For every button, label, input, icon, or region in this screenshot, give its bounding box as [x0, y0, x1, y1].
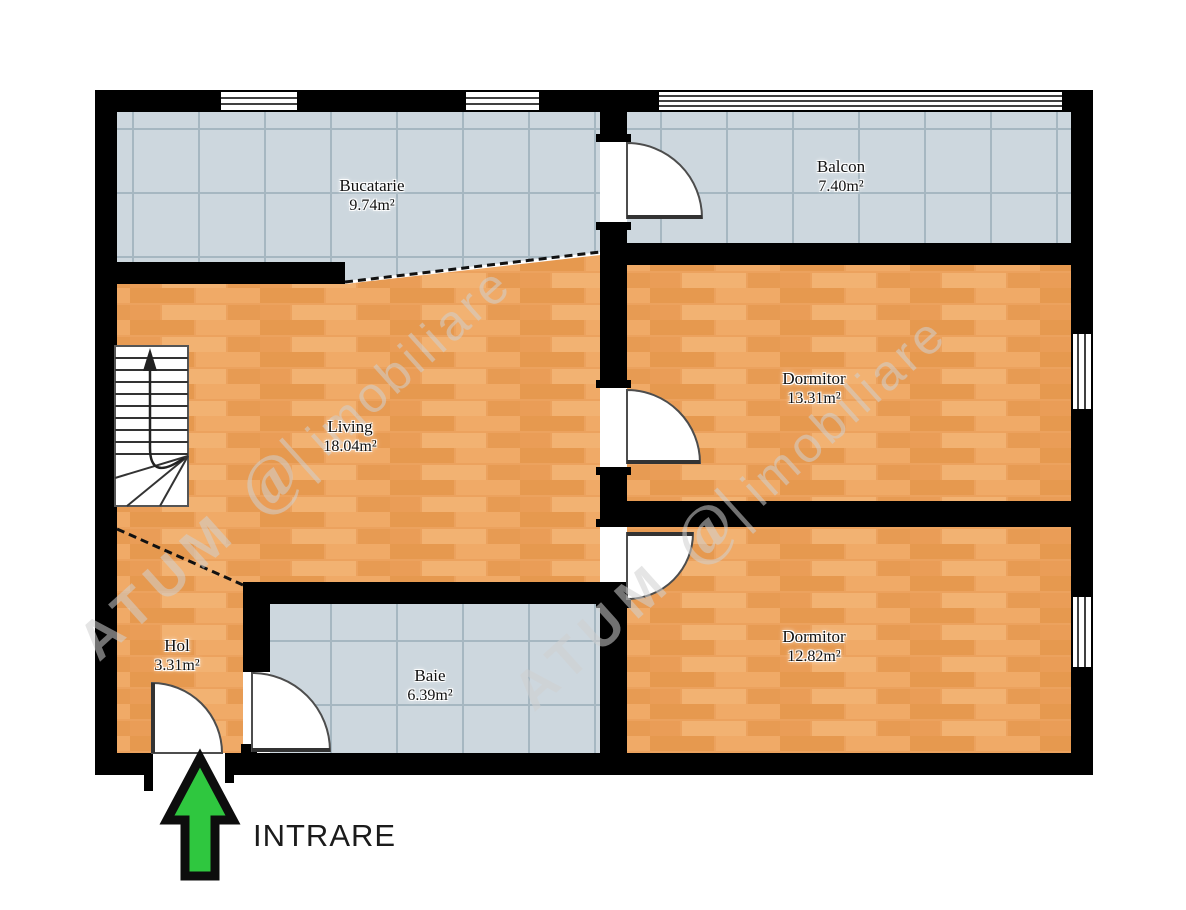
room-area: 12.82m² — [787, 648, 840, 667]
floor-plan-drawing — [0, 0, 1186, 910]
dormitor2-window — [1072, 596, 1092, 668]
staircase — [115, 346, 188, 506]
dormitor1-window — [1072, 333, 1092, 410]
balcony-glazing — [658, 91, 1063, 111]
room-label-balcon: Balcon 7.40m² — [817, 157, 865, 197]
kitchen-window-1 — [220, 91, 298, 111]
room-area: 9.74m² — [349, 197, 394, 216]
room-name: Baie — [414, 666, 445, 686]
room-name: Dormitor — [782, 369, 845, 389]
room-label-living: Living 18.04m² — [323, 417, 376, 457]
room-label-baie: Baie 6.39m² — [407, 666, 452, 706]
room-name: Hol — [164, 636, 190, 656]
room-label-bucatarie: Bucatarie 9.74m² — [339, 176, 404, 216]
room-label-dormitor-1: Dormitor 13.31m² — [782, 369, 845, 409]
room-name: Living — [327, 417, 372, 437]
room-area: 7.40m² — [818, 178, 863, 197]
entrance-arrow-icon — [167, 758, 233, 876]
room-area: 18.04m² — [323, 438, 376, 457]
room-label-hol: Hol 3.31m² — [154, 636, 199, 676]
room-label-dormitor-2: Dormitor 12.82m² — [782, 627, 845, 667]
room-area: 6.39m² — [407, 687, 452, 706]
room-dormitor2-floor — [627, 527, 1071, 753]
room-name: Balcon — [817, 157, 865, 177]
room-name: Bucatarie — [339, 176, 404, 196]
room-dormitor1-floor — [627, 265, 1071, 501]
entrance-label: INTRARE — [253, 818, 396, 854]
room-name: Dormitor — [782, 627, 845, 647]
room-area: 3.31m² — [154, 657, 199, 676]
room-area: 13.31m² — [787, 390, 840, 409]
kitchen-window-2 — [465, 91, 540, 111]
floor-plan: ATUM@|imobiliare ATUM@|imobiliare Bucata… — [0, 0, 1186, 910]
